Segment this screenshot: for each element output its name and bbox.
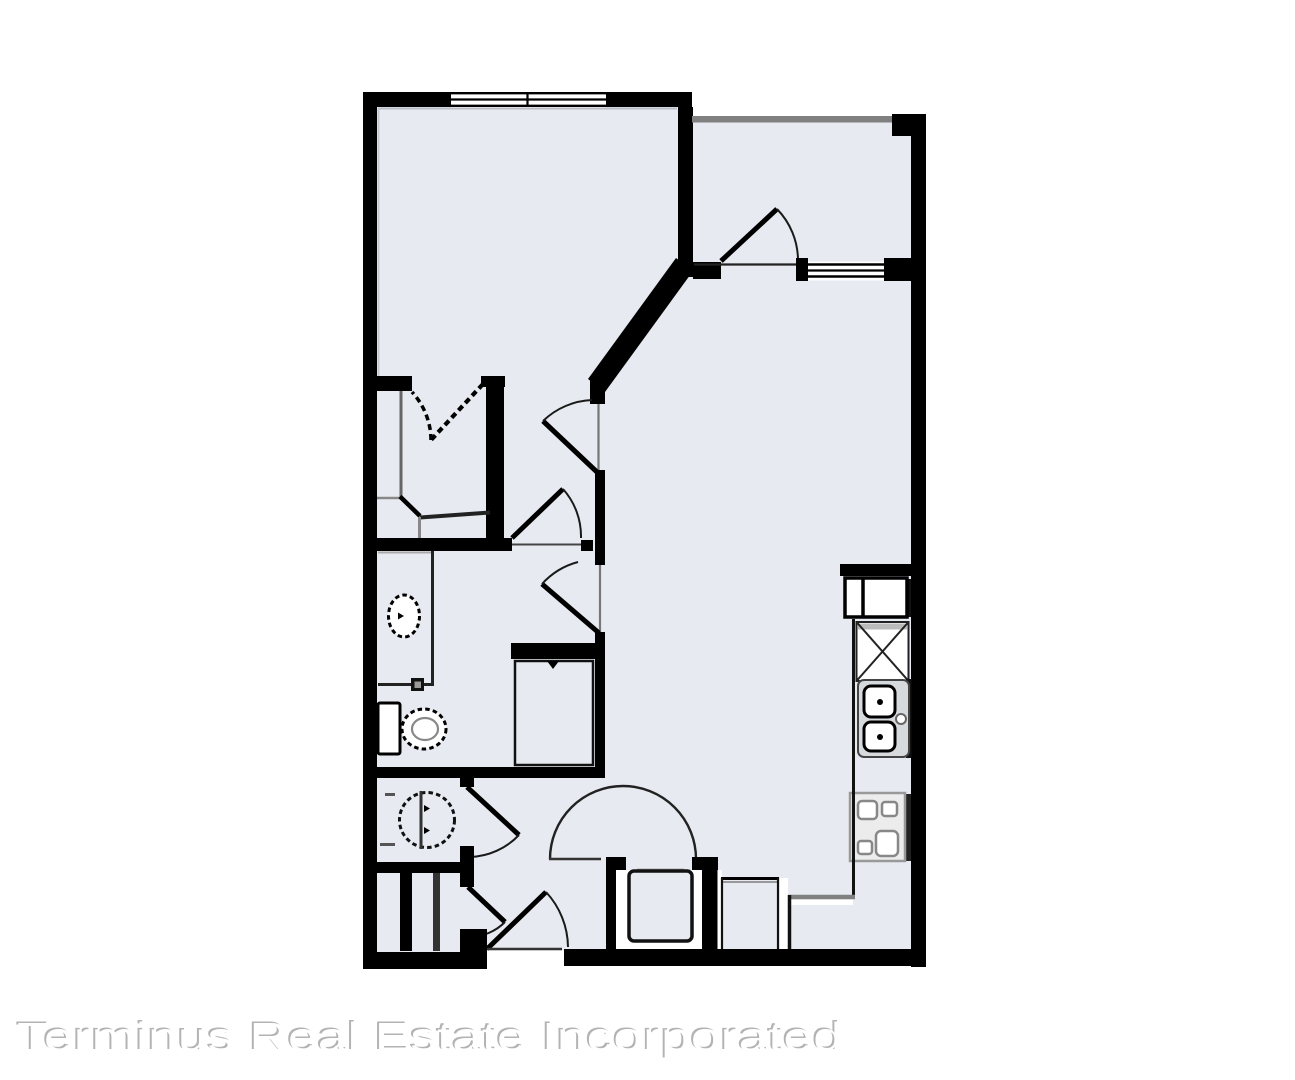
svg-text:Terminus Real Estate Incorpora: Terminus Real Estate Incorporated [17,1015,843,1059]
